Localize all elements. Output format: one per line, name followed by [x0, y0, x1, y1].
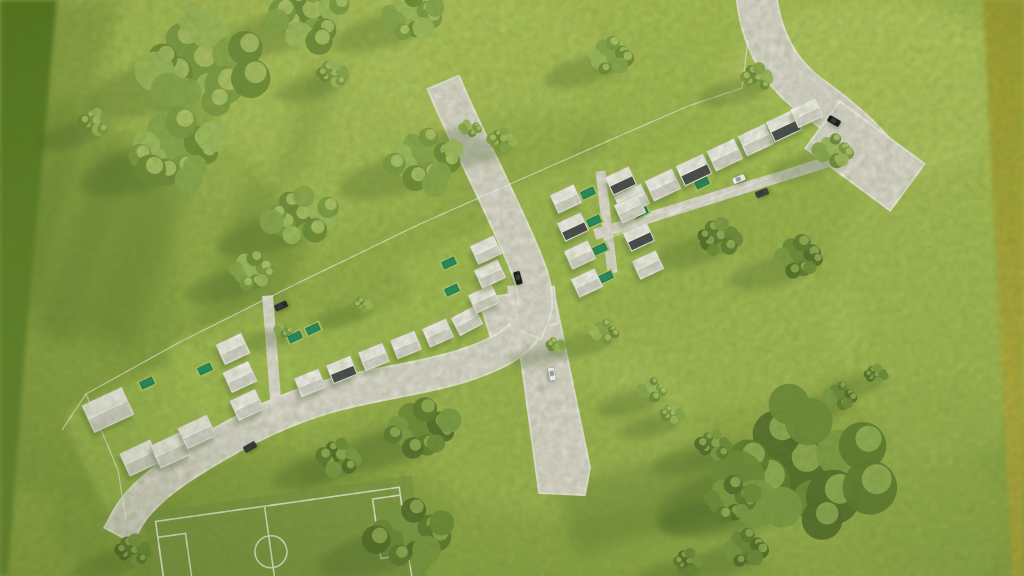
scene-canvas — [0, 0, 1024, 576]
vignette-overlay — [0, 0, 1024, 576]
aerial-site-render — [0, 0, 1024, 576]
